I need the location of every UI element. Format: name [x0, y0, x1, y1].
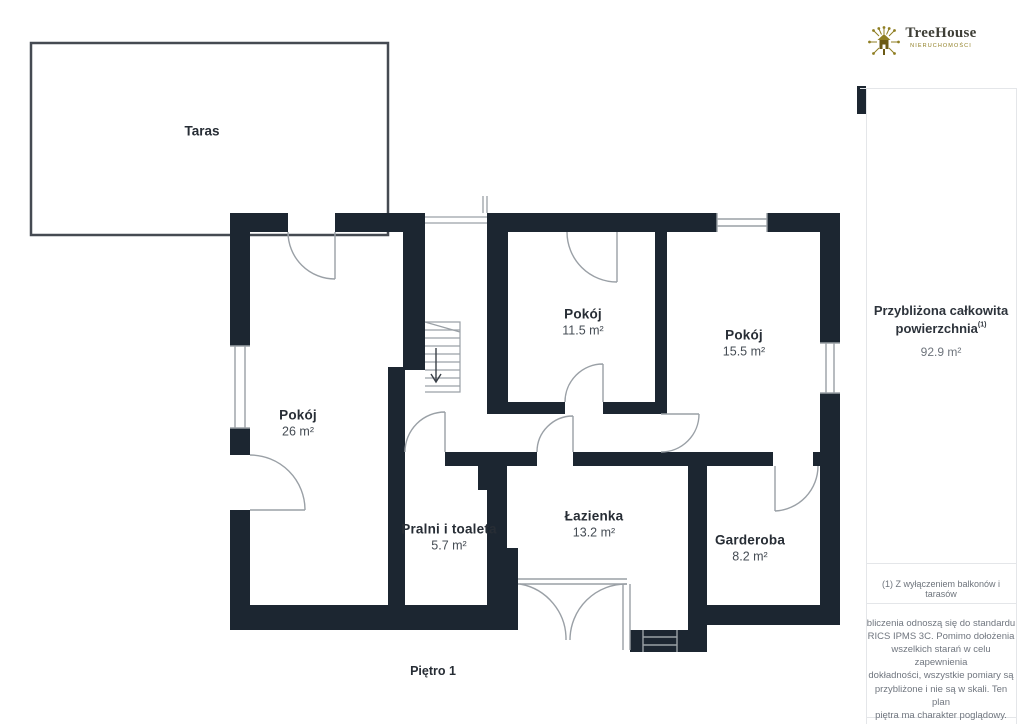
disclaimer-line: bliczenia odnoszą się do standardu: [866, 617, 1016, 630]
footnote-text: (1) Z wyłączeniem balkonów i tarasów: [866, 579, 1016, 599]
room-label-pokoj-15-5: Pokój 15.5 m²: [723, 328, 765, 359]
floorplan-page: Taras Pokój 11.5 m² Pokój 15.5 m² Pokój …: [0, 0, 1024, 724]
room-name: Pokój: [279, 408, 317, 423]
room-area: 5.7 m²: [401, 539, 496, 553]
room-area: 11.5 m²: [562, 324, 603, 338]
disclaimer-line: przybliżone i nie są w skali. Ten plan: [866, 683, 1016, 709]
room-name: Pokój: [562, 307, 603, 322]
total-area-summary: Przybliżona całkowita powierzchnia(1) 92…: [866, 303, 1016, 359]
room-label-garderoba: Garderoba 8.2 m²: [715, 533, 785, 564]
tree-house-logo-icon: [866, 24, 902, 60]
sidebar-divider-disclaimer: [866, 603, 1017, 604]
room-label-pokoj-26: Pokój 26 m²: [279, 408, 317, 439]
room-label-pokoj-11-5: Pokój 11.5 m²: [562, 307, 603, 338]
windows: [230, 213, 840, 652]
disclaimer-line: dokładności, wszystkie pomiary są: [866, 669, 1016, 682]
room-name: Łazienka: [565, 509, 624, 524]
summary-line2: powierzchnia: [896, 321, 978, 336]
sidebar-divider-footnote: [866, 563, 1017, 564]
agency-logo: TreeHouse NIERUCHOMOŚCI: [866, 24, 1016, 49]
stairs-down-arrow-icon: [431, 348, 441, 382]
total-area-value: 92.9 m²: [866, 345, 1016, 359]
room-name: Garderoba: [715, 533, 785, 548]
disclaimer-line: wszelkich starań w celu zapewnienia: [866, 643, 1016, 669]
floor-plan: [0, 0, 1024, 724]
staircase: [425, 322, 460, 392]
room-area: 15.5 m²: [723, 345, 765, 359]
taras-outline: [31, 43, 388, 235]
room-name: Pokój: [723, 328, 765, 343]
walls: [230, 86, 866, 652]
sidebar-divider-top: [860, 88, 1017, 89]
disclaimer-line: RICS IPMS 3C. Pomimo dołożenia: [866, 630, 1016, 643]
disclaimer-line: piętra ma charakter poglądowy.: [866, 709, 1016, 722]
sidebar-right-border: [1016, 88, 1017, 724]
disclaimer: bliczenia odnoszą się do standardu RICS …: [866, 617, 1016, 724]
summary-superscript: (1): [978, 322, 987, 329]
doors: [250, 232, 818, 650]
room-label-lazienka: Łazienka 13.2 m²: [565, 509, 624, 540]
room-label-pralnia: Pralni i toaleta 5.7 m²: [401, 522, 496, 553]
summary-line1: Przybliżona całkowita: [866, 303, 1016, 320]
room-area: 8.2 m²: [715, 550, 785, 564]
floor-title: Piętro 1: [410, 664, 456, 678]
terrace-label: Taras: [184, 124, 219, 139]
stairwell-edge-lines: [425, 196, 487, 223]
room-area: 13.2 m²: [565, 526, 624, 540]
room-area: 26 m²: [279, 425, 317, 439]
footnote: (1) Z wyłączeniem balkonów i tarasów: [866, 579, 1016, 599]
room-name: Pralni i toaleta: [401, 522, 496, 537]
